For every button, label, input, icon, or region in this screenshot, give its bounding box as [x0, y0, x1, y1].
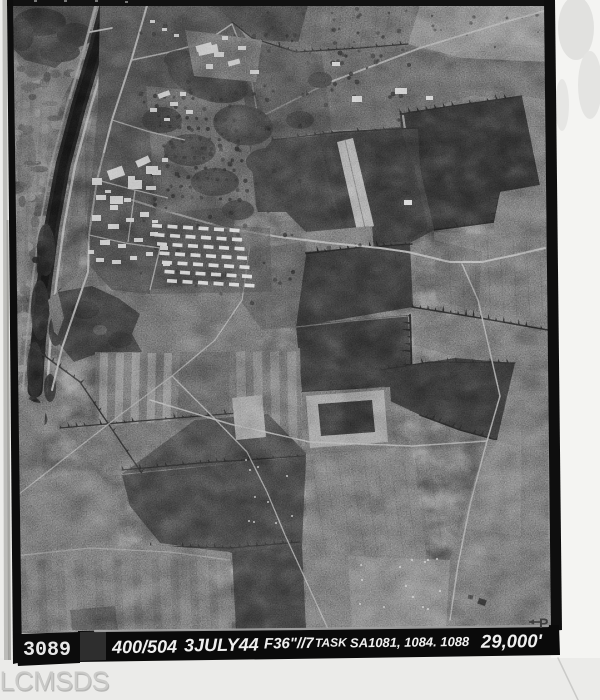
- svg-text:P: P: [539, 615, 548, 631]
- svg-text:400/504: 400/504: [111, 637, 177, 658]
- svg-text:LCMSDS: LCMSDS: [0, 666, 109, 696]
- svg-text:3JULY44: 3JULY44: [184, 635, 259, 656]
- svg-text:29,000': 29,000': [480, 630, 543, 652]
- svg-text:TASK: TASK: [315, 635, 348, 649]
- svg-text:3089: 3089: [23, 639, 71, 662]
- svg-text:SA1081, 1084. 1088: SA1081, 1084. 1088: [350, 634, 470, 650]
- svg-text:F36"//7: F36"//7: [264, 635, 314, 653]
